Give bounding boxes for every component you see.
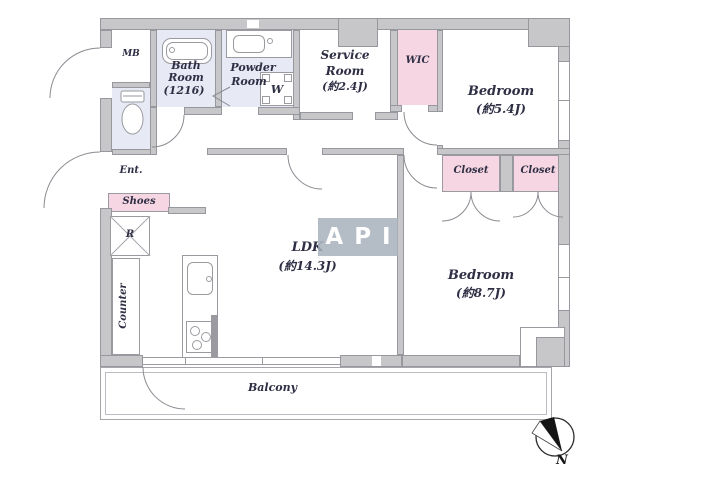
wall-entrance-stub xyxy=(168,207,206,214)
wall-closet-divider xyxy=(500,155,513,192)
wall-mb-bottom xyxy=(112,82,150,88)
service-label-2: Room xyxy=(298,65,392,77)
bedroom54-label: Bedroom xyxy=(443,85,559,98)
wall-top xyxy=(100,18,570,30)
door-arc-wic xyxy=(404,112,437,145)
closet-left-label: Closet xyxy=(442,166,500,176)
washing-machine-label: W xyxy=(260,84,294,95)
wall-wic-bottom-a xyxy=(390,105,402,112)
wall-right-mid xyxy=(558,140,570,245)
api-watermark: API xyxy=(318,218,398,256)
door-arc-bedroom87 xyxy=(404,155,437,188)
compass: N xyxy=(527,412,589,474)
door-arc-closet2-left xyxy=(513,192,538,217)
closet-right-label: Closet xyxy=(513,166,563,176)
mb-label: MB xyxy=(112,50,150,59)
bath-label-2: Room xyxy=(155,72,217,83)
wall-bottom-left xyxy=(100,355,143,367)
balcony-area xyxy=(100,367,552,420)
pillar-bedroom54 xyxy=(528,18,570,47)
wic-label: WIC xyxy=(398,56,437,66)
kitchen-sink xyxy=(187,262,213,295)
pillar-service xyxy=(338,18,378,47)
shoes-label: Shoes xyxy=(108,197,170,207)
toilet-room-area xyxy=(112,88,150,149)
floorplan: MB Bath Room (1216) Powder Room W Servic… xyxy=(0,0,710,479)
entrance-label: Ent. xyxy=(108,166,154,176)
wall-bottom-center xyxy=(340,355,402,367)
window-ldk-balcony xyxy=(143,357,340,365)
wall-corridor-b xyxy=(322,148,404,155)
bath-label-1: Bath xyxy=(155,60,217,71)
wall-bottom-bedroom xyxy=(402,355,520,367)
ldk-size-label: (約14.3J) xyxy=(250,260,365,272)
wall-service-bottom-b xyxy=(375,112,398,120)
window-bedroom54 xyxy=(558,62,570,140)
bedroom87-size-label: (約8.7J) xyxy=(404,287,558,299)
wall-ldk-bedroom87 xyxy=(397,155,404,355)
wall-wet-bottom-a xyxy=(184,107,222,115)
window-bedroom87 xyxy=(558,245,570,310)
wall-left-upper xyxy=(100,30,112,48)
powder-label-1: Powder xyxy=(220,62,286,73)
bedroom87-label: Bedroom xyxy=(404,269,558,282)
compass-north-label: N xyxy=(555,453,569,468)
bedroom54-size-label: (約5.4J) xyxy=(443,103,559,115)
door-arc-entrance xyxy=(44,152,100,208)
window-wall-slit xyxy=(372,356,381,366)
service-label-1: Service xyxy=(298,49,392,61)
service-size-label: (約2.4J) xyxy=(298,81,392,92)
wall-service-bottom-a xyxy=(300,112,353,120)
counter-label: Counter xyxy=(119,261,133,351)
balcony-label: Balcony xyxy=(200,382,345,393)
bath-size-label: (1216) xyxy=(153,85,215,96)
door-arc-mb xyxy=(50,48,100,98)
window-powder-slit xyxy=(247,20,259,28)
wall-corridor-a xyxy=(207,148,287,155)
pillar-bottom-right xyxy=(536,337,565,367)
wall-left-mid xyxy=(100,98,112,152)
kitchen-wall-strip xyxy=(211,315,218,358)
door-arc-ldk xyxy=(288,155,322,189)
wall-bedroom54-bottom xyxy=(437,148,570,155)
bathtub-inner xyxy=(166,42,208,60)
wall-wic-bedroom xyxy=(437,30,443,112)
door-arc-closet1-right xyxy=(471,192,500,221)
wic-area xyxy=(398,30,437,105)
wall-toilet-right xyxy=(150,107,157,155)
refrigerator-label: R xyxy=(110,230,150,240)
wall-wet-bottom-b xyxy=(258,107,300,115)
door-arc-closet1-left xyxy=(442,192,471,221)
vanity-bowl xyxy=(233,35,265,53)
